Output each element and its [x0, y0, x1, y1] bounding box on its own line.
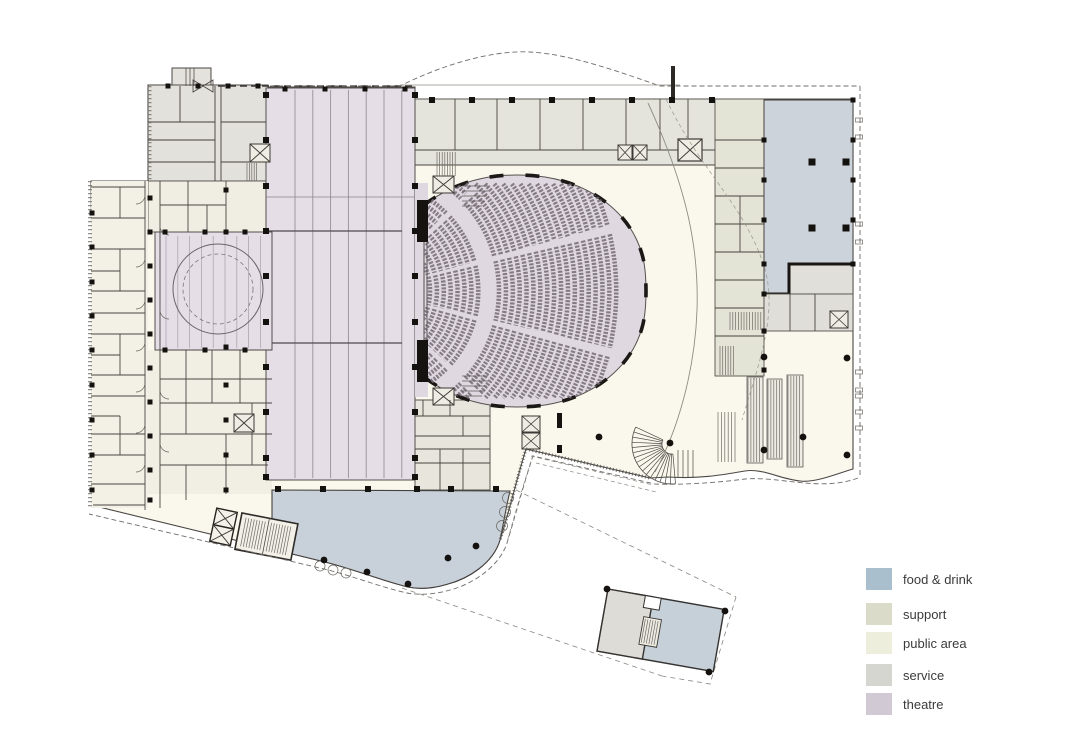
svg-text:theatre: theatre [903, 697, 943, 712]
svg-text:food & drink: food & drink [903, 572, 973, 587]
svg-text:public area: public area [903, 636, 967, 651]
svg-text:service: service [903, 668, 944, 683]
svg-text:support: support [903, 607, 947, 622]
